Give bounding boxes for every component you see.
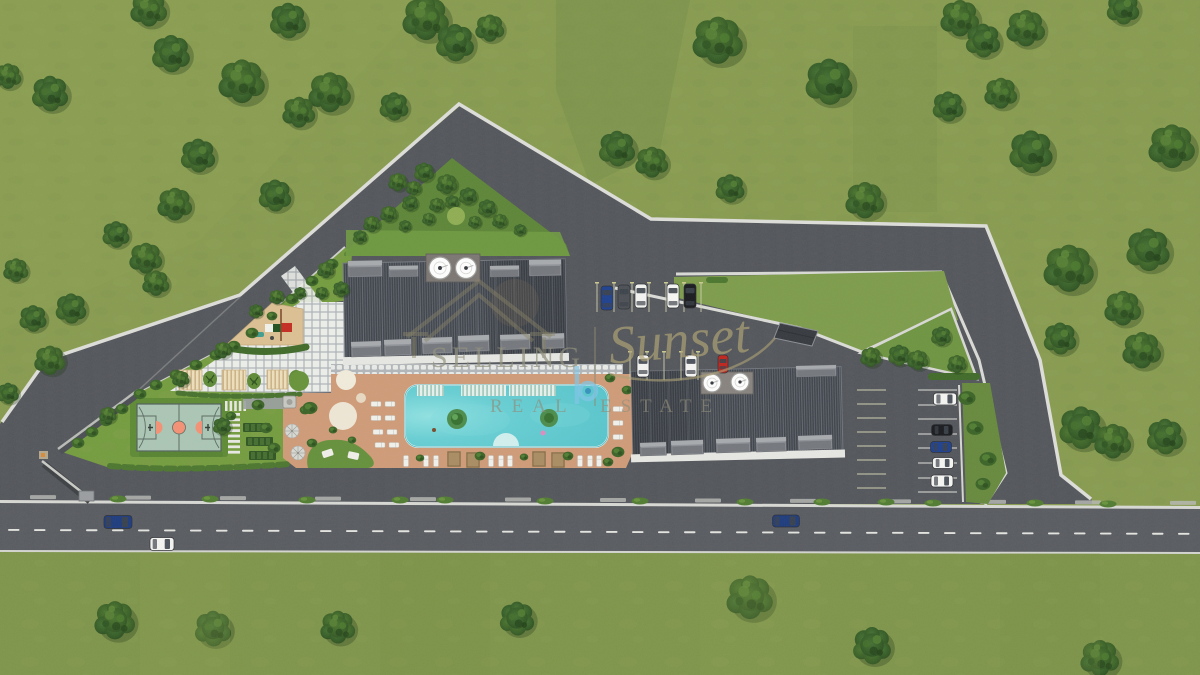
svg-text:REAL: REAL bbox=[490, 396, 576, 417]
svg-text:Sunset: Sunset bbox=[606, 303, 754, 375]
svg-text:ESTATE: ESTATE bbox=[600, 396, 721, 417]
svg-text:SELLING: SELLING bbox=[431, 341, 584, 374]
